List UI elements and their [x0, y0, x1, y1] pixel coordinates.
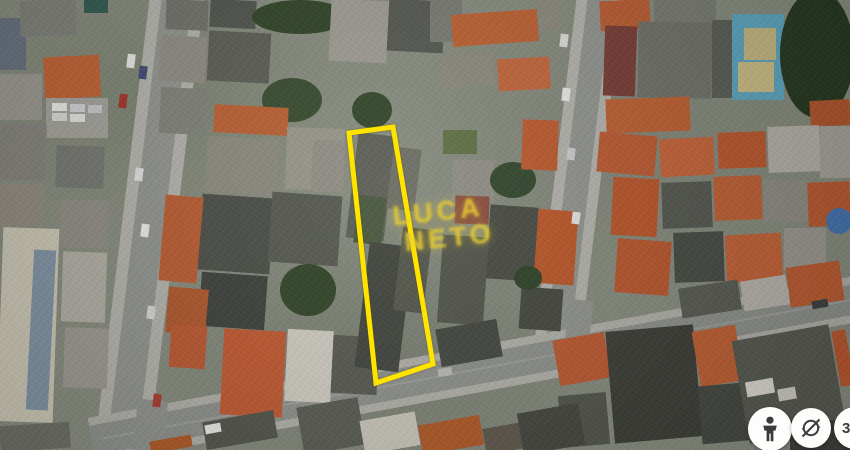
street-view-button[interactable] — [748, 407, 792, 450]
building-roof — [0, 74, 42, 120]
compass-icon — [799, 416, 823, 440]
building-roof — [437, 53, 495, 88]
roof-orange — [552, 332, 611, 386]
building-roof — [284, 329, 334, 403]
building-roof — [654, 0, 716, 24]
roof-orange — [659, 137, 715, 178]
lot-structure — [386, 147, 421, 212]
building-roof — [603, 25, 637, 96]
building-roof — [207, 30, 272, 83]
map-imagery — [0, 0, 850, 450]
pool-deck-patch — [738, 62, 774, 92]
car — [559, 34, 569, 48]
building-roof — [165, 0, 208, 31]
car — [140, 224, 150, 238]
compass-button[interactable] — [791, 408, 831, 448]
car — [70, 104, 85, 112]
car — [146, 306, 156, 320]
car — [138, 66, 148, 80]
building-roof — [0, 422, 71, 450]
roof-orange — [451, 9, 539, 47]
building-roof — [311, 139, 346, 193]
roof-orange — [614, 238, 672, 296]
building-roof — [637, 21, 712, 98]
roof-orange — [713, 175, 763, 221]
roof-orange — [717, 131, 766, 169]
car — [88, 105, 102, 113]
roof-orange — [605, 97, 690, 134]
building-roof — [764, 180, 808, 222]
building-roof — [359, 411, 420, 450]
building-roof — [820, 126, 850, 178]
tree-canopy — [514, 266, 542, 290]
lot-structure — [393, 226, 433, 313]
building-roof — [712, 20, 732, 98]
building-roof — [767, 125, 821, 173]
roof-orange — [169, 325, 208, 369]
building-roof — [159, 87, 207, 135]
roof-orange — [158, 195, 203, 284]
building-roof — [197, 194, 274, 275]
building-roof — [296, 397, 365, 450]
building-roof — [63, 327, 109, 388]
roof-orange — [418, 415, 484, 450]
roof-orange — [809, 99, 850, 127]
tree-canopy — [280, 264, 336, 316]
roof-orange — [611, 177, 660, 237]
building-roof — [673, 231, 725, 283]
pool-round — [826, 208, 850, 234]
building-roof — [84, 0, 108, 13]
building-roof — [0, 123, 47, 181]
building-roof — [519, 287, 564, 332]
building-roof — [437, 235, 489, 326]
building-roof — [661, 181, 713, 229]
tree-canopy — [352, 92, 392, 128]
building-roof — [605, 324, 702, 443]
roof-red — [455, 195, 490, 224]
building-roof — [540, 0, 560, 30]
map-3d-label: 3D — [842, 420, 850, 437]
roof-orange — [596, 132, 657, 177]
building-roof — [209, 0, 256, 29]
building-roof — [158, 34, 207, 83]
car — [126, 54, 136, 69]
lot-vegetation — [353, 194, 387, 245]
car — [70, 114, 85, 122]
car — [52, 113, 67, 121]
car — [566, 148, 575, 161]
pool-deck-patch — [744, 28, 776, 60]
pegman-icon — [760, 416, 780, 442]
roof-orange — [497, 57, 551, 92]
building-roof — [268, 192, 343, 267]
building-roof — [205, 136, 280, 196]
courtyard — [328, 0, 389, 63]
roof-orange — [43, 55, 101, 100]
building-roof — [198, 272, 268, 330]
car — [561, 88, 571, 102]
roof-orange — [220, 328, 286, 417]
car — [571, 212, 580, 225]
roof-orange — [521, 119, 559, 170]
building-roof — [517, 403, 585, 450]
car — [118, 94, 128, 109]
satellite-map-view[interactable]: LUCA NETO 3D — [0, 0, 850, 450]
roof-orange — [213, 104, 288, 136]
building-roof — [19, 0, 76, 37]
car — [134, 168, 144, 182]
building-roof — [55, 145, 104, 189]
building-roof — [59, 199, 109, 249]
building-roof — [0, 184, 44, 226]
car — [52, 103, 67, 111]
car — [152, 394, 162, 408]
building-roof — [61, 251, 107, 322]
grass-patch — [443, 130, 477, 154]
